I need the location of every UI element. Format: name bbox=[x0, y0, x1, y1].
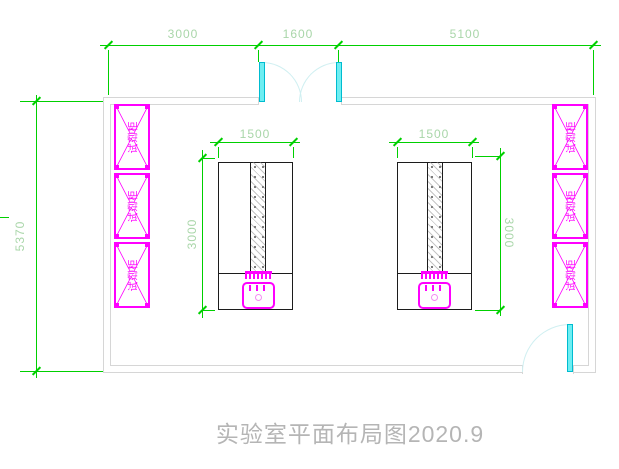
extension-line bbox=[202, 310, 215, 311]
sink-tap bbox=[256, 285, 258, 291]
cabinet-corner bbox=[583, 234, 588, 239]
cabinet-corner bbox=[583, 104, 588, 109]
extension-line bbox=[108, 50, 109, 95]
cabinet-corner bbox=[145, 104, 150, 109]
bench-width-dimension-line bbox=[210, 142, 300, 143]
bench-center-strip bbox=[427, 162, 443, 274]
reagent-cabinet: 试剂柜 bbox=[114, 242, 150, 308]
drawing-title: 实验室平面布局图2020.9 bbox=[160, 415, 540, 449]
cabinet-corner bbox=[114, 165, 119, 170]
dimension-label-1500: 1500 bbox=[394, 127, 474, 141]
sink-tap bbox=[249, 285, 251, 291]
dimension-label-1500: 1500 bbox=[215, 127, 295, 141]
dimension-label-3000: 3000 bbox=[143, 27, 223, 41]
cabinet-corner bbox=[583, 303, 588, 308]
cabinet-corner bbox=[145, 165, 150, 170]
dimension-label-1600: 1600 bbox=[258, 27, 338, 41]
extension-line bbox=[218, 147, 219, 158]
bench-center-strip bbox=[250, 162, 266, 274]
cabinet-corner bbox=[552, 104, 557, 109]
cabinet-corner bbox=[114, 104, 119, 109]
edge-mark bbox=[0, 217, 9, 218]
extension-line bbox=[593, 50, 594, 95]
cabinet-corner bbox=[145, 242, 150, 247]
door-leaf bbox=[259, 62, 265, 102]
cabinet-corner bbox=[145, 173, 150, 178]
dimension-label-5100: 5100 bbox=[425, 27, 505, 41]
cabinet-corner bbox=[583, 165, 588, 170]
extension-line bbox=[475, 156, 500, 157]
extension-line bbox=[293, 147, 294, 158]
cabinet-corner bbox=[552, 165, 557, 170]
sink-drain bbox=[431, 294, 438, 301]
floor-plan-canvas: 3000 1600 5100 5370 1500 3000 1500 3000 bbox=[0, 0, 619, 469]
top-dimension-line bbox=[100, 45, 601, 46]
cabinet-corner bbox=[114, 242, 119, 247]
sink-tap bbox=[432, 285, 434, 291]
bench-height-dimension-line bbox=[202, 150, 203, 318]
dimension-label-3000: 3000 bbox=[502, 202, 516, 264]
reagent-cabinet: 试剂柜 bbox=[114, 104, 150, 170]
dimension-label-3000: 3000 bbox=[185, 203, 199, 265]
sink-tap bbox=[425, 285, 427, 291]
dimension-label-5370: 5370 bbox=[13, 204, 27, 268]
cabinet-corner bbox=[145, 303, 150, 308]
cabinet-corner bbox=[114, 234, 119, 239]
door-leaf bbox=[336, 62, 342, 102]
sink-faucet-strip bbox=[421, 271, 448, 279]
door-swing-arc bbox=[262, 62, 302, 102]
cabinet-corner bbox=[114, 303, 119, 308]
door-leaf bbox=[567, 324, 573, 372]
cabinet-corner bbox=[552, 234, 557, 239]
left-dimension-line bbox=[36, 95, 37, 378]
cabinet-corner bbox=[583, 173, 588, 178]
sink-drain bbox=[255, 294, 262, 301]
extension-line bbox=[472, 147, 473, 158]
extension-line bbox=[202, 158, 215, 159]
sink-faucet-strip bbox=[245, 271, 272, 279]
cabinet-corner bbox=[583, 242, 588, 247]
cabinet-corner bbox=[145, 234, 150, 239]
extension-line bbox=[338, 50, 339, 62]
sink-tap bbox=[439, 285, 441, 291]
door-swing-arc bbox=[299, 62, 339, 102]
cabinet-label: 试剂柜 bbox=[125, 259, 140, 292]
reagent-cabinet: 试剂柜 bbox=[552, 104, 588, 170]
cabinet-label: 试剂柜 bbox=[563, 190, 578, 223]
cabinet-corner bbox=[552, 303, 557, 308]
cabinet-label: 试剂柜 bbox=[125, 190, 140, 223]
cabinet-label: 试剂柜 bbox=[563, 259, 578, 292]
bench-height-dimension-line bbox=[500, 148, 501, 316]
reagent-cabinet: 试剂柜 bbox=[552, 173, 588, 239]
cabinet-corner bbox=[552, 173, 557, 178]
reagent-cabinet: 试剂柜 bbox=[552, 242, 588, 308]
reagent-cabinet: 试剂柜 bbox=[114, 173, 150, 239]
bench-width-dimension-line bbox=[389, 142, 479, 143]
cabinet-label: 试剂柜 bbox=[125, 121, 140, 154]
sink-tap bbox=[263, 285, 265, 291]
door-jamb bbox=[573, 365, 574, 374]
cabinet-corner bbox=[114, 173, 119, 178]
cabinet-corner bbox=[552, 242, 557, 247]
extension-line bbox=[397, 147, 398, 158]
cabinet-label: 试剂柜 bbox=[563, 121, 578, 154]
extension-line bbox=[475, 310, 500, 311]
extension-line bbox=[258, 50, 259, 62]
wall-inner-outline bbox=[110, 104, 589, 366]
